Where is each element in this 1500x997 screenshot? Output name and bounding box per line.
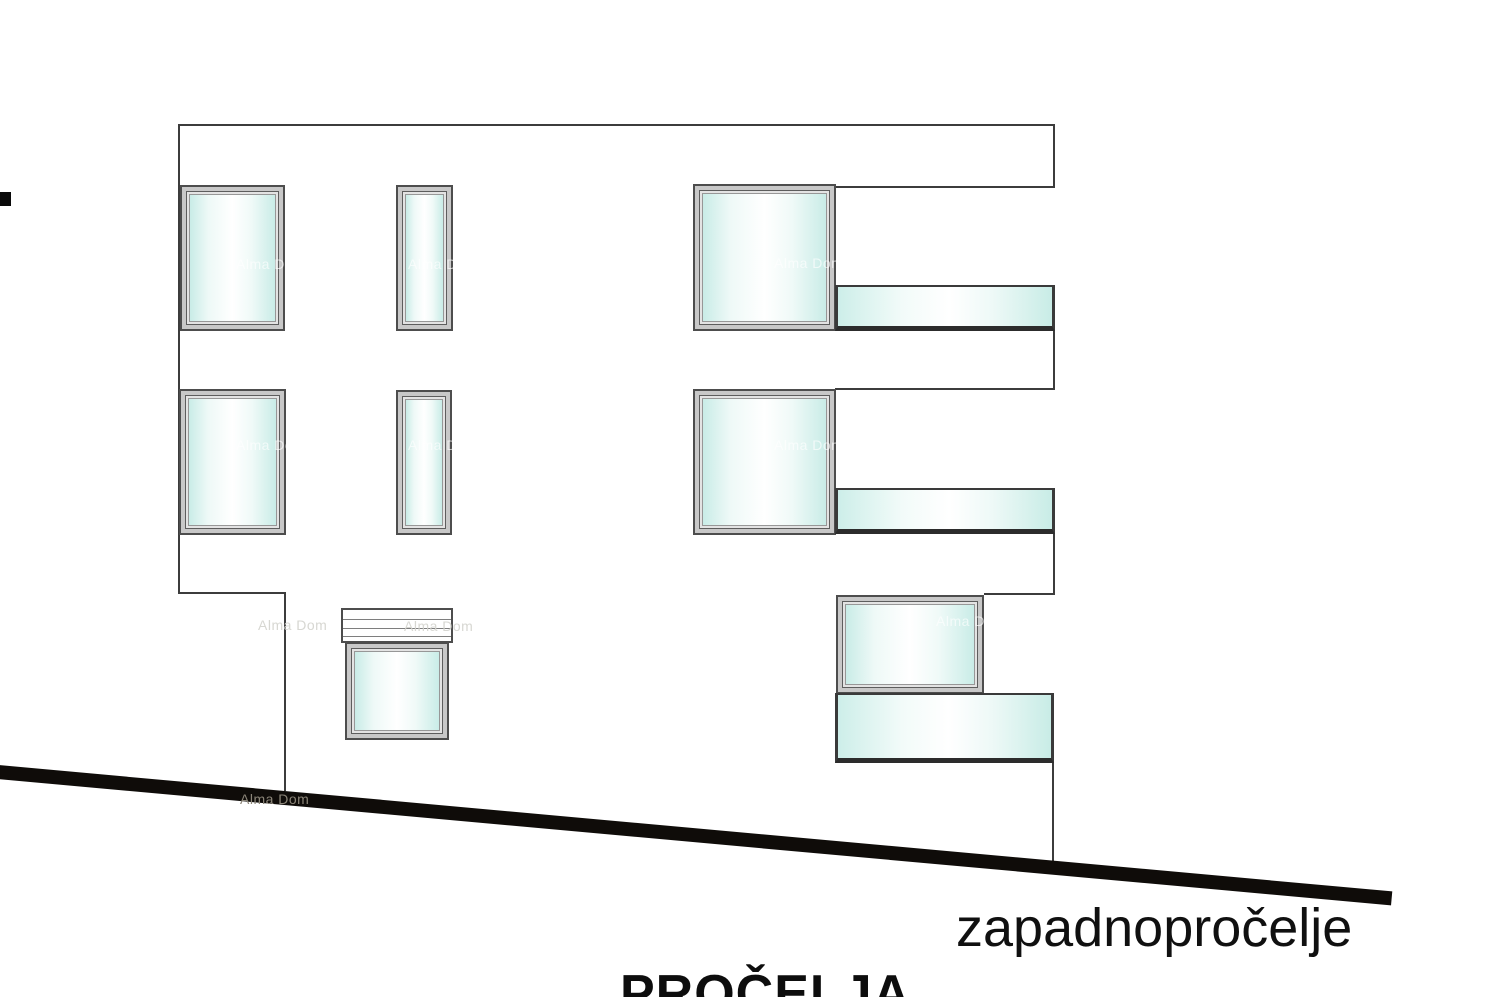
terrace2-glass-balustrade: [835, 488, 1055, 534]
watermark: Alma Dom: [404, 618, 473, 634]
window-ground-shuttered: [345, 642, 449, 740]
right-edge-mid1: [1053, 329, 1055, 390]
watermark: Alma Dom: [258, 617, 327, 633]
window-glass: [354, 651, 440, 731]
window-glass: [188, 398, 277, 526]
window-floor2-terrace: [693, 389, 836, 535]
watermark: Alma Dom: [408, 256, 477, 272]
terrace3-slab-line: [984, 593, 1055, 595]
left-setback-line: [178, 592, 286, 594]
building-top-edge: [178, 124, 1055, 126]
window-floor2-narrow: [396, 390, 452, 535]
watermark: Alma Dom: [774, 255, 843, 271]
window-sash: [351, 648, 443, 734]
watermark: Alma Dom: [240, 791, 309, 807]
window-glass: [702, 398, 827, 526]
right-edge-lower: [1052, 761, 1054, 861]
watermark: Alma Dom: [236, 256, 305, 272]
terrace2-slab-line: [835, 388, 1055, 390]
watermark: Alma Dom: [936, 613, 1005, 629]
window-glass: [405, 399, 443, 526]
right-edge-upper: [1053, 124, 1055, 188]
window-ground-terrace: [836, 595, 984, 694]
window-sash: [699, 395, 830, 529]
window-floor2-left: [179, 389, 286, 535]
ground-terrain-line: [0, 765, 1392, 905]
window-sash: [402, 396, 446, 529]
terrace1-glass-balustrade: [835, 285, 1055, 331]
terrace1-slab-line: [835, 186, 1055, 188]
terrace3-glass-balustrade: [835, 693, 1054, 763]
west-elevation-drawing: Alma Dom Alma Dom Alma Dom Alma Dom Alma…: [0, 0, 1500, 997]
right-edge-mid2: [1053, 533, 1055, 595]
sheet-title: PROČELJA: [620, 966, 911, 997]
left-edge-mark: [0, 192, 11, 206]
watermark: Alma Dom: [236, 437, 305, 453]
watermark: Alma Dom: [774, 437, 843, 453]
facade-label: zapadnopročelje: [956, 899, 1352, 958]
watermark: Alma Dom: [408, 437, 477, 453]
window-sash: [185, 395, 280, 529]
